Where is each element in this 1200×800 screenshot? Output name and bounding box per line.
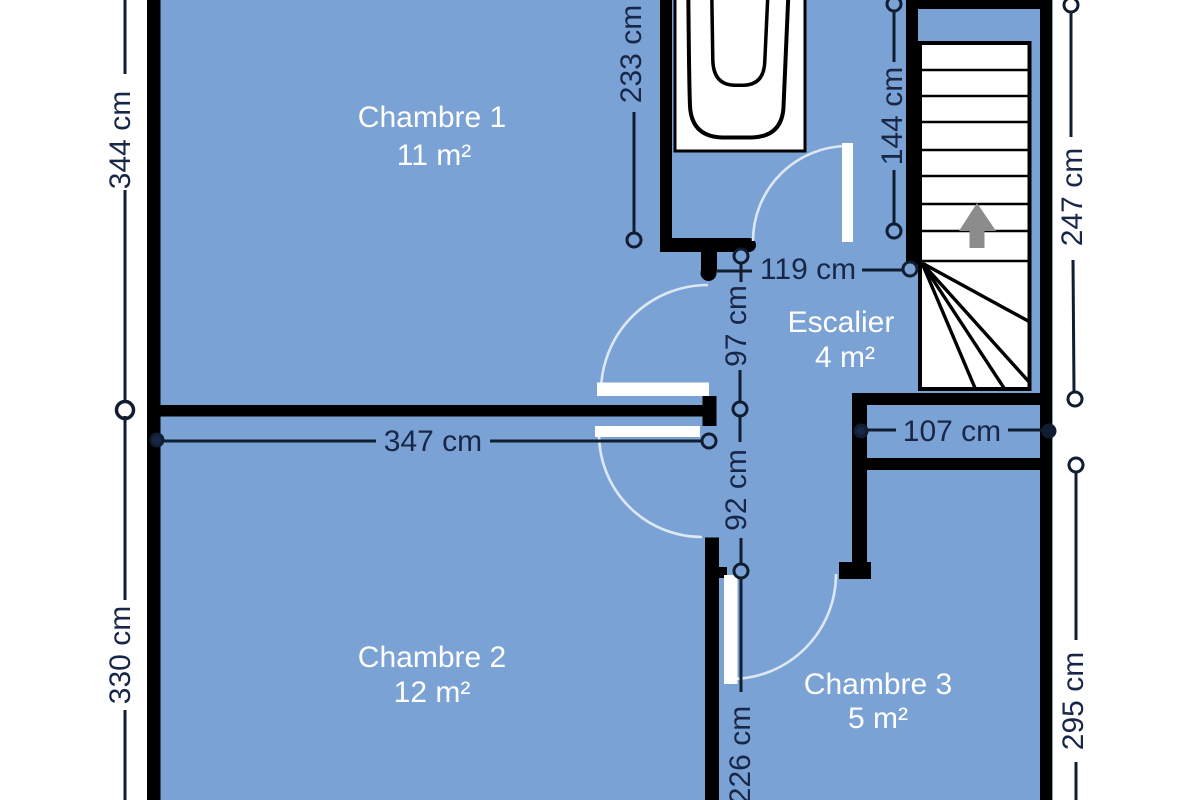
svg-text:226 cm: 226 cm (724, 706, 757, 800)
svg-text:5 m²: 5 m² (848, 702, 908, 735)
svg-text:11 m²: 11 m² (397, 139, 471, 172)
svg-text:233 cm: 233 cm (615, 5, 648, 103)
svg-text:144 cm: 144 cm (876, 67, 909, 165)
svg-text:Chambre 3: Chambre 3 (804, 668, 952, 701)
svg-text:Chambre 1: Chambre 1 (358, 101, 506, 134)
svg-text:92 cm: 92 cm (720, 449, 753, 531)
svg-text:12 m²: 12 m² (394, 676, 471, 709)
svg-text:Escalier: Escalier (788, 306, 895, 339)
svg-text:295 cm: 295 cm (1057, 652, 1090, 750)
svg-text:Chambre 2: Chambre 2 (358, 641, 506, 674)
svg-text:4 m²: 4 m² (815, 341, 875, 374)
svg-text:107 cm: 107 cm (903, 415, 1001, 448)
svg-text:119 cm: 119 cm (760, 253, 856, 286)
svg-text:347 cm: 347 cm (384, 425, 482, 458)
svg-text:247 cm: 247 cm (1056, 148, 1089, 246)
svg-text:97 cm: 97 cm (720, 285, 753, 367)
svg-text:330 cm: 330 cm (104, 606, 137, 704)
svg-text:344 cm: 344 cm (104, 91, 137, 189)
